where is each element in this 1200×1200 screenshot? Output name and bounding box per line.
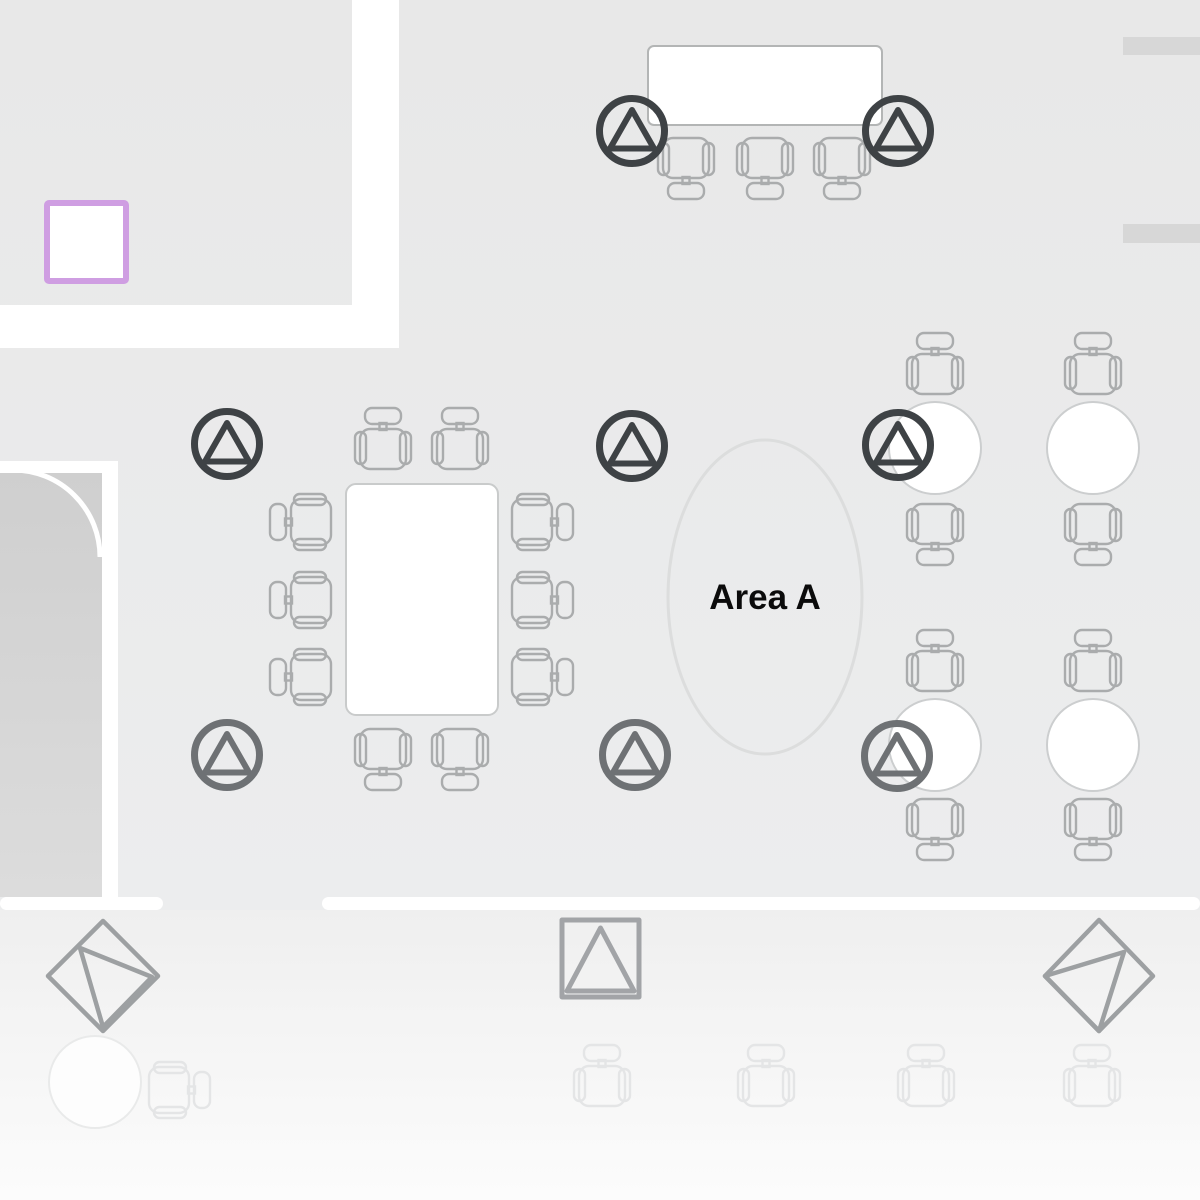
corridor-room xyxy=(0,473,102,897)
round-table[interactable] xyxy=(1047,699,1139,791)
wall xyxy=(102,461,118,905)
floor-layer xyxy=(0,0,1200,1200)
wall xyxy=(352,0,399,348)
wall xyxy=(0,305,399,348)
floor-plan-canvas: Area A xyxy=(0,0,1200,1200)
lower-floor xyxy=(0,910,1200,1200)
rect-table[interactable] xyxy=(346,484,498,715)
selection-layer xyxy=(47,203,126,281)
area-label: Area A xyxy=(709,578,821,617)
wall xyxy=(0,897,163,910)
faded-round-table[interactable] xyxy=(49,1036,141,1128)
wall-segment xyxy=(1123,37,1200,55)
wall-segment xyxy=(1123,224,1200,243)
floor-plan-scene: Area A xyxy=(0,0,1200,1200)
selection-square[interactable] xyxy=(47,203,126,281)
round-table[interactable] xyxy=(1047,402,1139,494)
wall xyxy=(322,897,1200,910)
rect-table[interactable] xyxy=(648,46,882,125)
